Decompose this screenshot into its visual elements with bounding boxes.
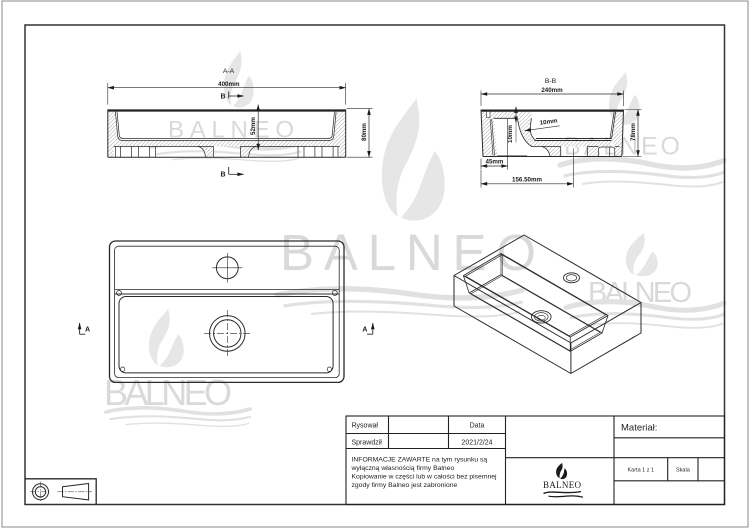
svg-text:10mm: 10mm — [539, 117, 558, 126]
svg-text:B: B — [221, 93, 226, 100]
svg-text:45mm: 45mm — [486, 159, 504, 166]
svg-text:wyłączną własnością firmy Baln: wyłączną własnością firmy Balneo — [351, 465, 455, 472]
svg-text:52mm: 52mm — [250, 117, 257, 135]
svg-text:80mm: 80mm — [361, 123, 368, 141]
svg-text:Karta 1 z 1: Karta 1 z 1 — [627, 468, 654, 474]
svg-text:Kopiowanie w części lub w cało: Kopiowanie w części lub w całości bez pi… — [352, 473, 498, 480]
svg-text:156.50mm: 156.50mm — [512, 177, 542, 184]
svg-text:INFORMACJE ZAWARTE na tym rysu: INFORMACJE ZAWARTE na tym rysunku są — [352, 456, 488, 463]
svg-text:BALNEO: BALNEO — [104, 372, 232, 413]
svg-text:A: A — [85, 327, 90, 334]
svg-text:BALNEO: BALNEO — [168, 117, 294, 144]
svg-text:BALNEO: BALNEO — [543, 480, 582, 490]
svg-text:A-A: A-A — [223, 68, 235, 75]
svg-text:400mm: 400mm — [218, 81, 240, 88]
svg-text:B-B: B-B — [545, 78, 557, 85]
svg-text:Skala: Skala — [676, 468, 691, 474]
svg-text:Materiał:: Materiał: — [621, 423, 657, 434]
svg-text:Rysował: Rysował — [352, 423, 379, 430]
svg-text:B: B — [221, 171, 226, 178]
svg-text:A: A — [362, 327, 367, 334]
svg-text:zgody firmy Balneo jest zabron: zgody firmy Balneo jest zabronione — [352, 482, 458, 489]
svg-text:BALNEO: BALNEO — [280, 224, 536, 281]
svg-text:2021/2/24: 2021/2/24 — [461, 440, 492, 447]
svg-text:Data: Data — [470, 423, 485, 430]
svg-text:Sprawdził: Sprawdził — [352, 440, 383, 447]
svg-text:240mm: 240mm — [541, 87, 563, 94]
svg-text:78mm: 78mm — [630, 123, 637, 141]
